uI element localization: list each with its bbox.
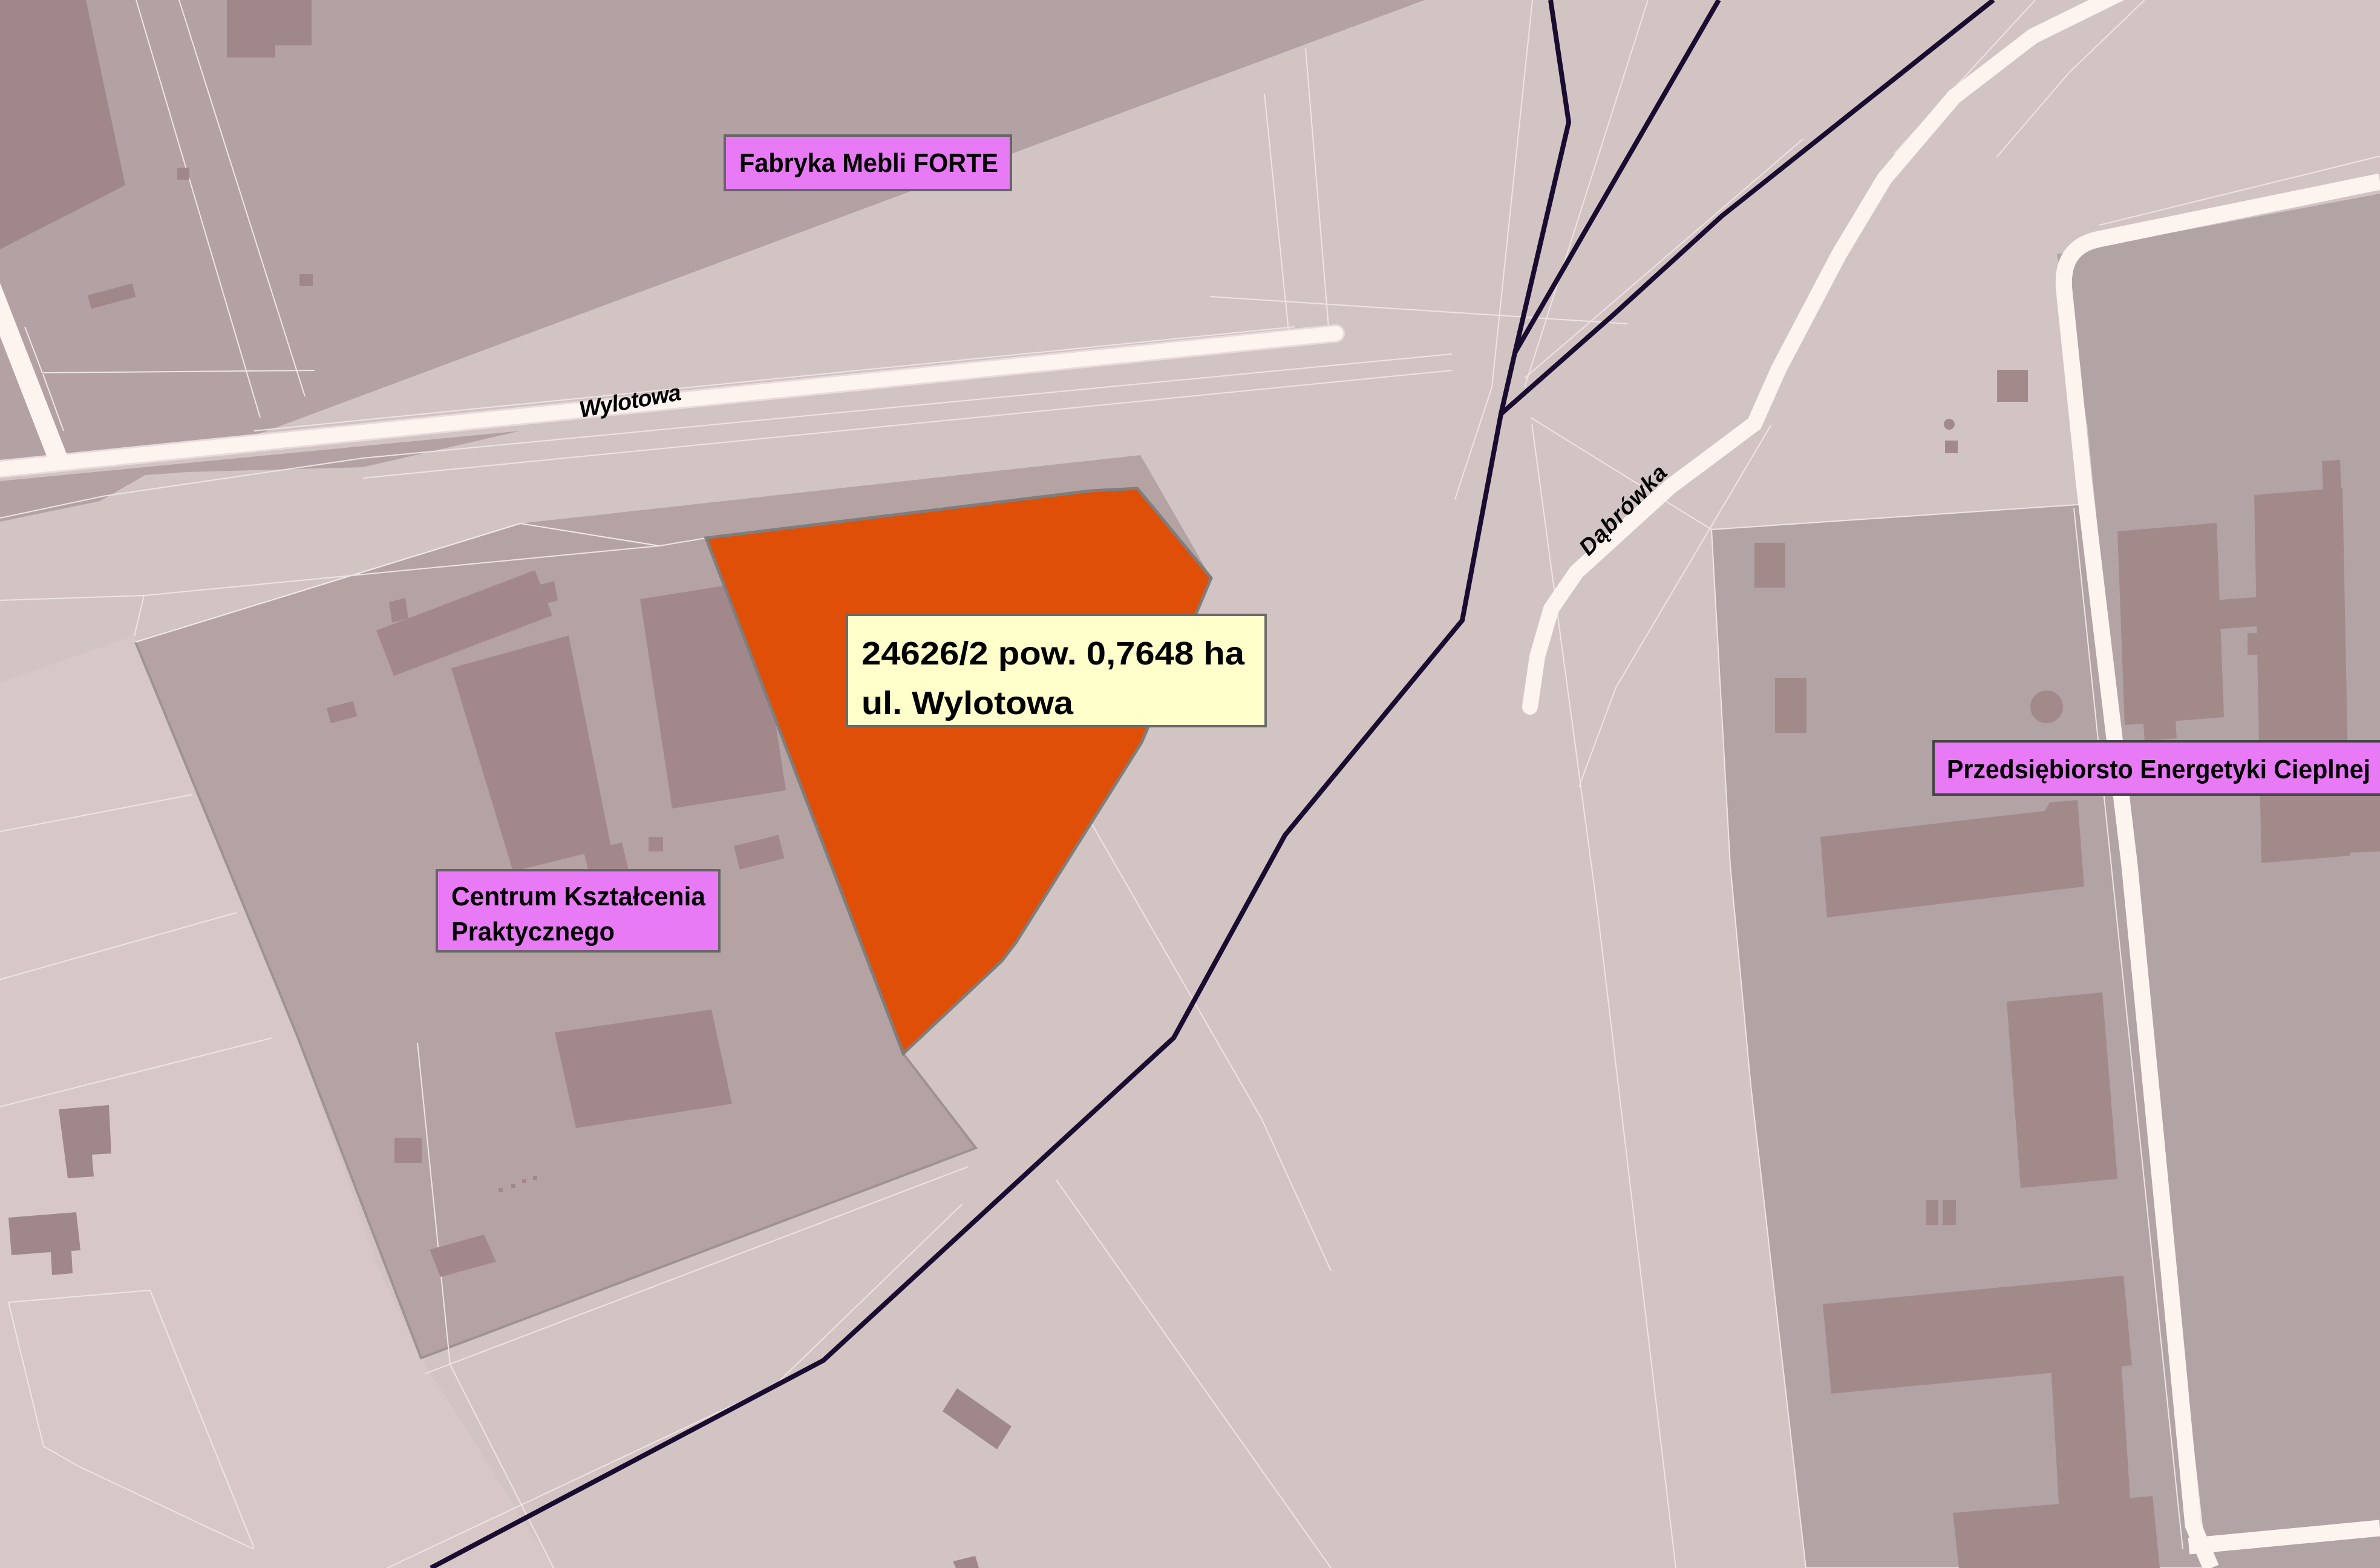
svg-text:Fabryka Mebli FORTE: Fabryka Mebli FORTE (739, 148, 998, 178)
svg-text:ul. Wylotowa: ul. Wylotowa (861, 685, 1074, 721)
svg-text:Przedsiębiorsto Energetyki Cie: Przedsiębiorsto Energetyki Cieplnej (1947, 755, 2370, 784)
svg-text:Praktycznego: Praktycznego (451, 917, 615, 946)
svg-text:24626/2 pow. 0,7648 ha: 24626/2 pow. 0,7648 ha (861, 635, 1245, 672)
svg-text:Centrum Kształcenia: Centrum Kształcenia (451, 882, 706, 911)
